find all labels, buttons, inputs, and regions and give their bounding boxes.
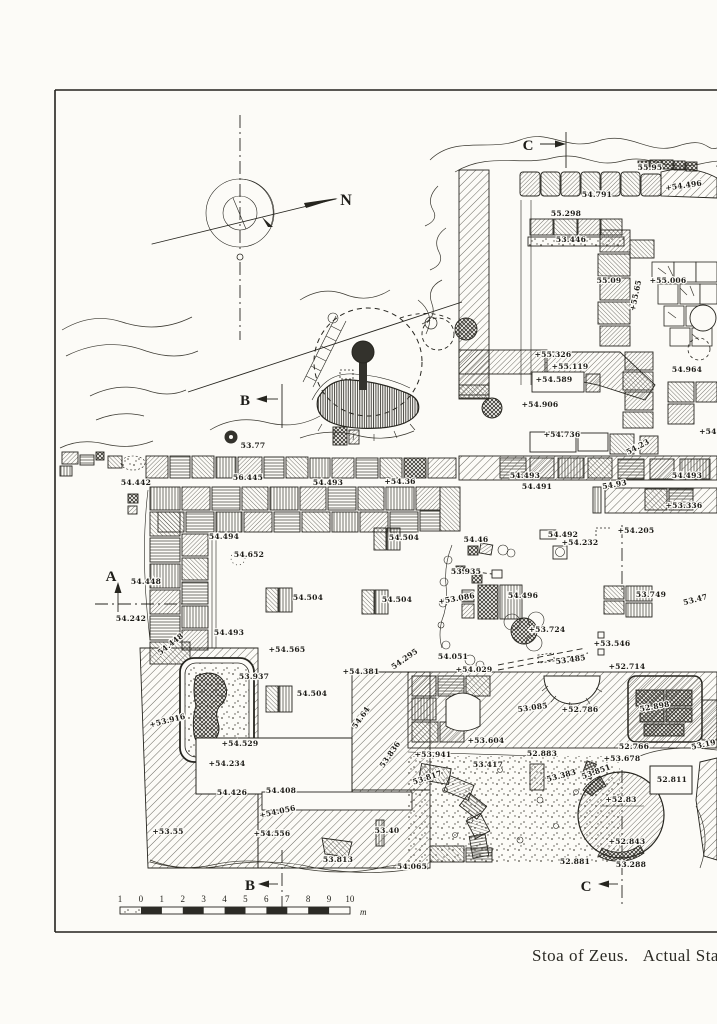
elevation-label: 54.493	[214, 628, 244, 637]
elevation-label: +52.786	[562, 705, 599, 714]
scale-tick-label: 2	[180, 894, 185, 904]
scale-tick-label: 5	[243, 894, 248, 904]
scale-unit-label: m	[360, 907, 367, 917]
scale-tick-label: 10	[345, 894, 355, 904]
elevation-label: 53.288	[616, 860, 646, 869]
trench-edge-line	[188, 302, 462, 392]
section-marker-letter: A	[106, 569, 117, 585]
elevation-label: +53.604	[468, 736, 505, 745]
elevation-label: 54.46	[464, 535, 489, 544]
elevation-label: +53.678	[604, 754, 641, 763]
scale-tick-label: 7	[285, 894, 290, 904]
elevation-label: 55.95	[638, 163, 663, 172]
site-plan: 1012345678910 m 54.79155.29853.44655.95+…	[0, 0, 717, 1024]
elevation-label: 54.051	[438, 652, 468, 661]
elevation-label: +52.843	[609, 837, 646, 846]
elevation-label: +54.529	[222, 739, 259, 748]
caption-title: Stoa of Zeus.	[532, 946, 629, 965]
elevation-label: +54.8	[699, 427, 717, 436]
elevation-label: +53.724	[529, 625, 566, 634]
south-wall-band	[408, 672, 717, 756]
elevation-label: 52.766	[619, 742, 649, 751]
elevation-label: 54.504	[389, 533, 419, 542]
plate-caption: Stoa of Zeus.Actual State	[532, 946, 717, 966]
ashlar-paving	[652, 262, 717, 346]
stair-band	[303, 316, 346, 387]
elevation-label: 54.493	[313, 478, 343, 487]
elevation-label: 54.493	[510, 471, 540, 480]
scale-bar: 1012345678910 m	[118, 894, 367, 917]
elevation-label: 56.445	[233, 473, 263, 482]
scale-tick-label: 0	[139, 894, 144, 904]
elevation-label: 54.491	[522, 482, 552, 491]
elevation-label: +52.83	[605, 795, 636, 804]
section-marker-letter: B	[240, 393, 250, 409]
section-marker-letter: B	[245, 878, 255, 894]
scale-tick-label: 6	[264, 894, 269, 904]
scale-tick-labels: 1012345678910	[118, 894, 355, 904]
elevation-label: +54.36	[384, 477, 415, 486]
elevation-label: 52.811	[657, 775, 687, 784]
elevation-label: 52.881	[560, 857, 590, 866]
elevation-label: +53.336	[666, 501, 703, 510]
elevation-label: 53.47	[682, 592, 708, 607]
elevation-label: 53.417	[473, 760, 503, 769]
stoa-north-wall	[150, 487, 460, 532]
caption-state: Actual State	[643, 946, 717, 965]
elevation-label: 53.77	[241, 441, 266, 450]
scale-tick-label: 1	[160, 894, 165, 904]
elevation-label: +54.205	[618, 526, 655, 535]
compass-rose	[152, 115, 338, 340]
elevation-label: +54.556	[254, 829, 291, 838]
elevation-label: +54.589	[536, 375, 573, 384]
scale-tick-label: 1	[118, 894, 123, 904]
elevation-label: 54.295	[390, 647, 420, 672]
elevation-label: 55.09	[597, 276, 622, 285]
elevation-label: 53.485	[555, 653, 586, 666]
elevation-label: 54.493	[672, 471, 702, 480]
elevation-label: 53.813	[323, 855, 353, 864]
elevation-label: 54.494	[209, 532, 239, 541]
elevation-label: +54.565	[269, 645, 306, 654]
elevation-label: +53.546	[594, 639, 631, 648]
scale-tick-label: 3	[201, 894, 206, 904]
elevation-label: +54.736	[544, 430, 581, 439]
scale-tick-label: 8	[306, 894, 311, 904]
elevation-label: +55.006	[650, 276, 687, 285]
elevation-label: 54.408	[266, 786, 296, 795]
round-enclosure	[303, 308, 454, 441]
elevation-label: 53.446	[556, 235, 586, 244]
plate-page: 1012345678910 m 54.79155.29853.44655.95+…	[0, 0, 717, 1024]
elevation-label: 54.504	[382, 595, 412, 604]
section-marker-letter: N	[340, 192, 352, 209]
elevation-label: +54.029	[456, 665, 493, 674]
elevation-label: 53.40	[375, 826, 400, 835]
scale-tick-label: 9	[327, 894, 332, 904]
elevation-label: 54.504	[297, 689, 327, 698]
scale-tick-label: 4	[222, 894, 227, 904]
elevation-label: 53.935	[451, 567, 481, 576]
elevation-label: 54.448	[131, 577, 161, 586]
elevation-label: +54.381	[343, 667, 380, 676]
section-marker-letter: C	[523, 138, 534, 154]
elevation-label: +54.232	[562, 538, 599, 547]
elevation-label: 54.426	[217, 788, 247, 797]
elevation-label: +53.941	[415, 750, 452, 759]
elevation-label: 53.749	[636, 590, 666, 599]
elevation-label: 53.937	[239, 672, 269, 681]
elevation-label: 54.504	[293, 593, 323, 602]
elevation-label: 54.242	[116, 614, 146, 623]
elevation-label: 54.442	[121, 478, 151, 487]
elevation-label: 54.791	[582, 190, 612, 199]
north-arrowhead	[304, 198, 338, 208]
elevation-label: +55.326	[535, 350, 572, 359]
elevation-label: 54.652	[234, 550, 264, 559]
elevation-label: +54.906	[522, 400, 559, 409]
elevation-label: 55.298	[551, 209, 581, 218]
elevation-label: 54.964	[672, 365, 702, 374]
elevation-label: +53.55	[152, 827, 183, 836]
elevation-label: +55.119	[552, 362, 589, 371]
elevation-label: +54.234	[209, 759, 246, 768]
elevation-label: 54.065	[397, 862, 427, 871]
elevation-label: +52.714	[609, 662, 646, 671]
elevation-label: 52.883	[527, 749, 557, 758]
elevation-label: 54.496	[508, 591, 538, 600]
section-marker-letter: C	[581, 879, 592, 895]
